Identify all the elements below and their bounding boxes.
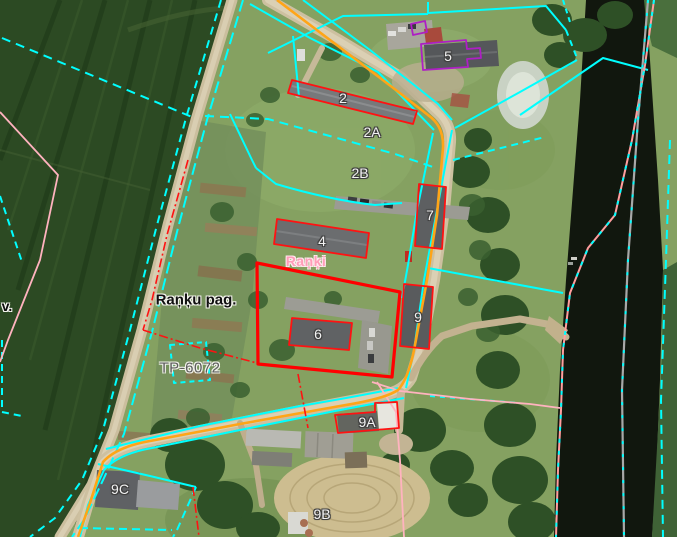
map-viewport[interactable]: 2 2A 2B 4 5 6 7 9 9A 9B 9C Raņķi Raņķu p… xyxy=(0,0,677,537)
aerial-imagery xyxy=(0,0,677,537)
